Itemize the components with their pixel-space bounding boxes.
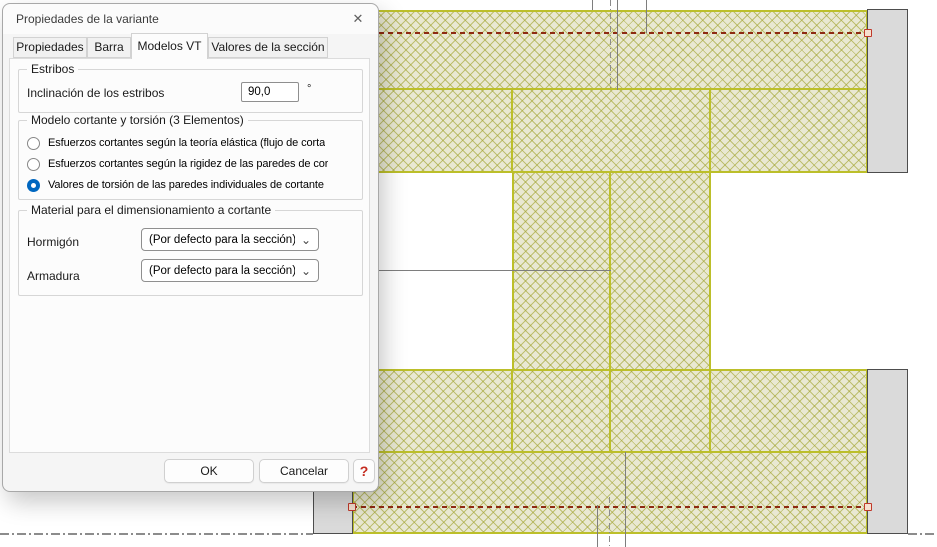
group-modelo-vt: Modelo cortante y torsión (3 Elementos) … [18, 120, 363, 200]
dimension-line [646, 0, 647, 33]
help-button[interactable]: ? [353, 459, 375, 483]
tab-valores-seccion[interactable]: Valores de la sección [208, 37, 328, 58]
torsion-axis-bottom [352, 506, 868, 508]
close-icon[interactable]: ✕ [346, 8, 370, 30]
dimension-line [625, 452, 626, 547]
centerline-horizontal-right [908, 533, 937, 535]
wall-divider [709, 371, 711, 451]
end-plate-right-bottom [867, 369, 908, 534]
tab-propiedades[interactable]: Propiedades [13, 37, 87, 58]
stirrup-inclination-input[interactable] [241, 82, 299, 102]
wall-divider [511, 371, 513, 451]
option-wall-stiffness[interactable]: Esfuerzos cortantes según la rigidez de … [27, 154, 356, 174]
group-estribos-legend: Estribos [27, 62, 78, 76]
option-individual-wall-torsion[interactable]: Valores de torsión de las paredes indivi… [27, 175, 356, 195]
wall-divider [609, 371, 611, 451]
hormigon-combo[interactable]: (Por defecto para la sección) ⌄ [141, 228, 319, 251]
group-material-legend: Material para el dimensionamiento a cort… [27, 203, 275, 217]
end-plate-right-top [867, 9, 908, 173]
armadura-label: Armadura [27, 269, 80, 283]
dialog-title: Propiedades de la variante [16, 12, 159, 26]
app-viewport: Propiedades de la variante ✕ Propiedades… [0, 0, 937, 547]
armadura-combo[interactable]: (Por defecto para la sección) ⌄ [141, 259, 319, 282]
variant-properties-dialog: Propiedades de la variante ✕ Propiedades… [2, 3, 379, 492]
radio-unselected-icon[interactable] [27, 158, 40, 171]
stirrup-inclination-label: Inclinación de los estribos [27, 86, 164, 100]
cancel-button[interactable]: Cancelar [259, 459, 349, 483]
group-material: Material para el dimensionamiento a cort… [18, 210, 363, 296]
section-hatch-bottom-flange-lower [352, 451, 868, 534]
option-elastic-theory[interactable]: Esfuerzos cortantes según la teoría elás… [27, 133, 356, 153]
section-hatch-top-flange-lower [352, 88, 868, 173]
wall-divider [709, 90, 711, 173]
centerline-horizontal-left [0, 533, 313, 535]
tab-barra[interactable]: Barra [87, 37, 131, 58]
tab-modelos-vt[interactable]: Modelos VT [131, 33, 208, 59]
degree-unit-label: ° [307, 83, 311, 95]
chevron-down-icon: ⌄ [301, 266, 311, 276]
group-estribos: Estribos Inclinación de los estribos ° [18, 69, 363, 113]
dimension-line [617, 0, 618, 90]
radio-unselected-icon[interactable] [27, 137, 40, 150]
section-hatch-web [512, 171, 711, 371]
radio-selected-icon[interactable] [27, 179, 40, 192]
ok-button[interactable]: OK [164, 459, 254, 483]
wall-divider [609, 173, 611, 369]
dimension-line [592, 0, 593, 10]
dimension-line-horizontal [375, 270, 611, 271]
group-modelo-vt-legend: Modelo cortante y torsión (3 Elementos) [27, 113, 248, 127]
axis-endpoint-marker [864, 503, 872, 511]
centerline-vertical-bottom [609, 497, 610, 547]
tab-page-modelos-vt: Estribos Inclinación de los estribos ° M… [9, 58, 370, 453]
centerline-vertical-top [610, 0, 611, 88]
axis-endpoint-marker [864, 29, 872, 37]
axis-endpoint-marker [348, 503, 356, 511]
hormigon-label: Hormigón [27, 235, 79, 249]
dimension-line [597, 505, 598, 547]
dialog-title-bar[interactable]: Propiedades de la variante ✕ [3, 4, 378, 34]
chevron-down-icon: ⌄ [301, 235, 311, 245]
wall-divider [511, 90, 513, 173]
